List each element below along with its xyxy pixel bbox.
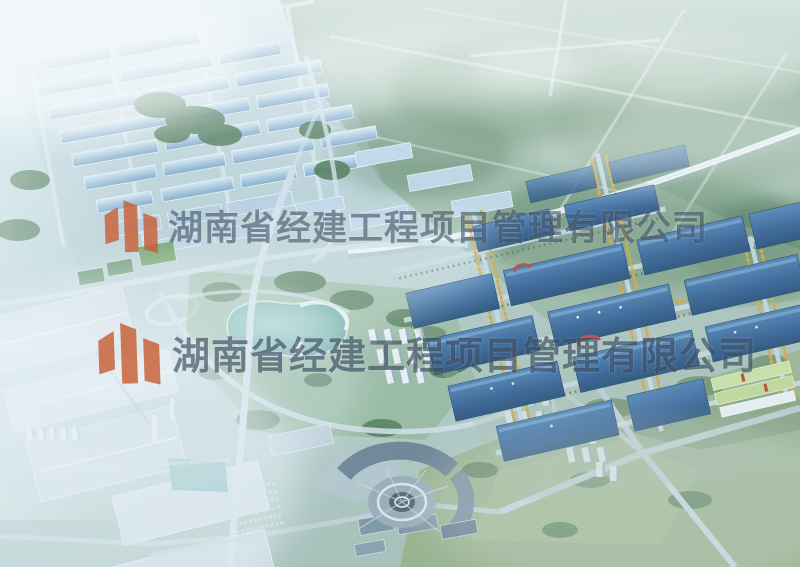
aerial-rendering: 湖南省经建工程项目管理有限公司 湖南省经建工程项目管理有限公司 (0, 0, 800, 567)
rendering-scene (0, 0, 800, 567)
haze-overlays (0, 0, 800, 567)
